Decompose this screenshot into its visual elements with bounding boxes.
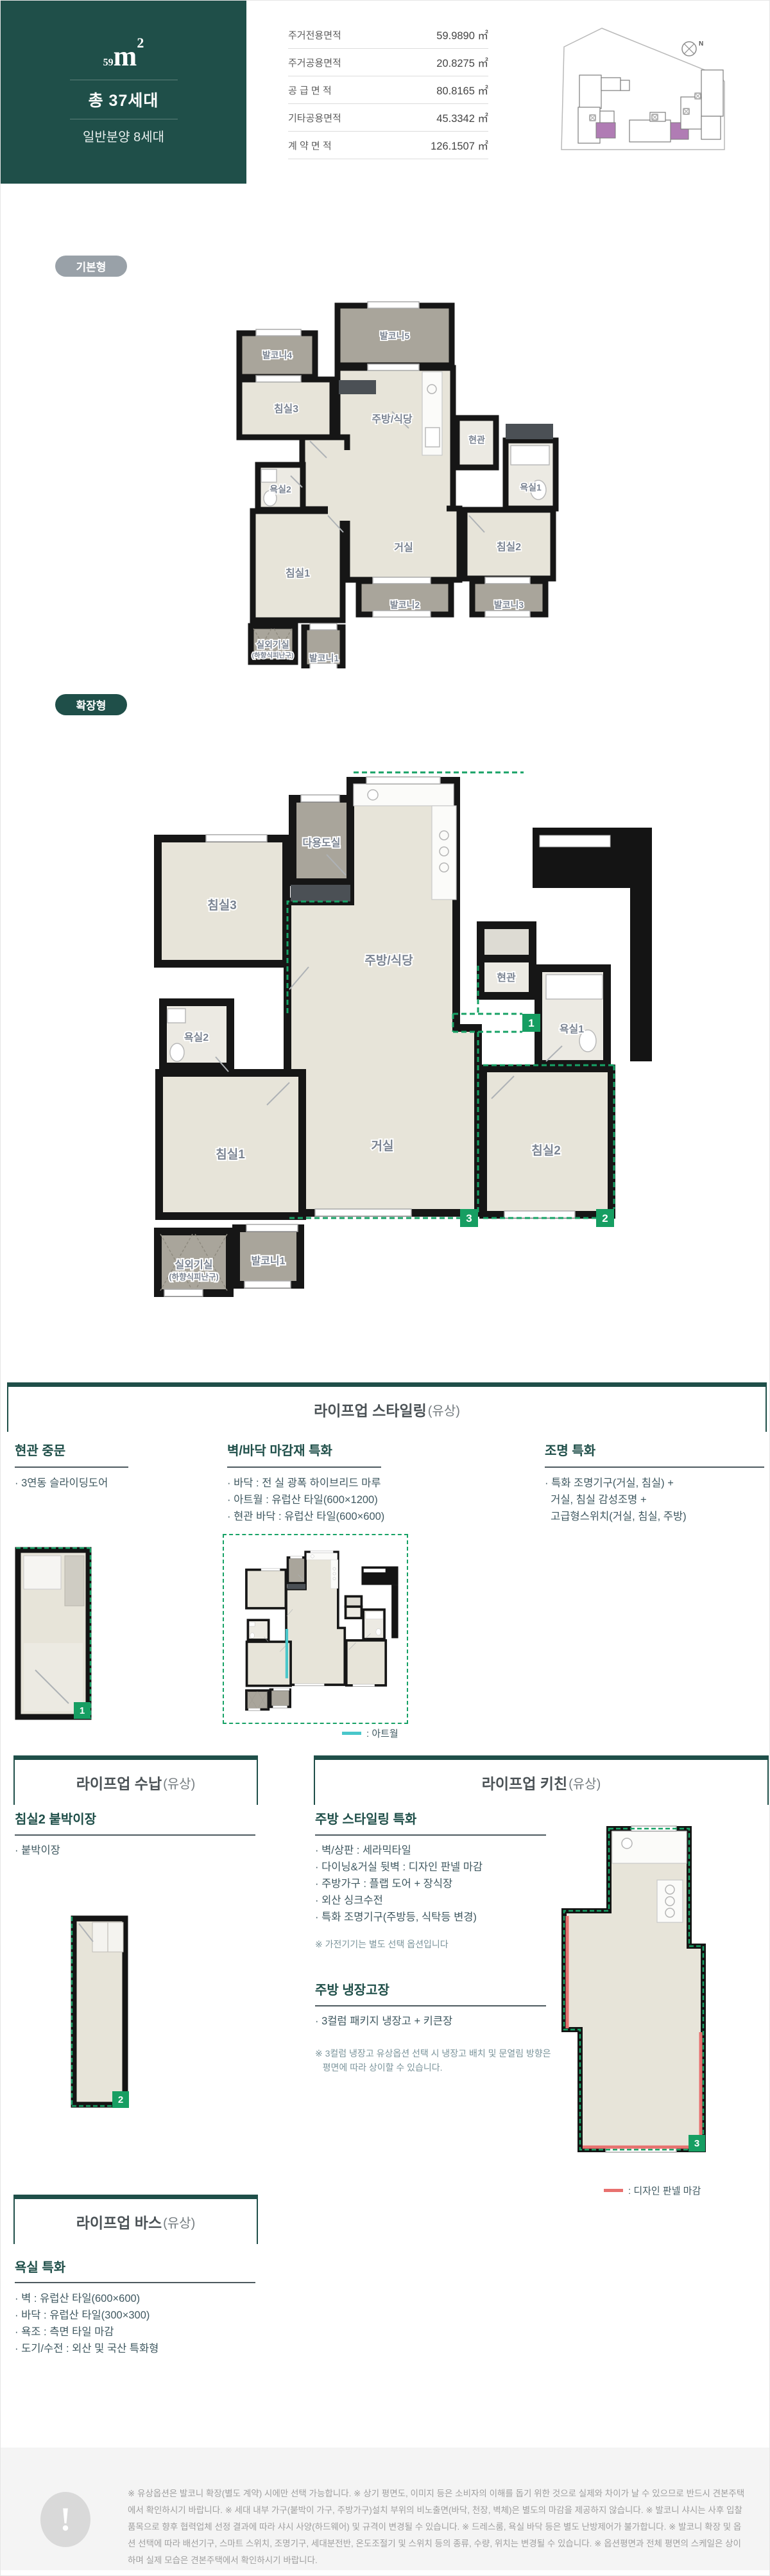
svg-text:N: N <box>699 40 703 48</box>
table-row: 주거공용면적20.8275 ㎡ <box>288 49 488 76</box>
room-label: 침실2 <box>497 541 521 553</box>
room-label: 발코니3 <box>494 600 524 610</box>
row-value: 20.8275 ㎡ <box>436 55 488 70</box>
table-row: 공 급 면 적80.8165 ㎡ <box>288 76 488 104</box>
artwall-legend: : 아트월 <box>342 1727 398 1740</box>
feature-heading: 주방 냉장고장 <box>315 1980 389 1998</box>
room-label: 현관 <box>468 435 485 445</box>
section-title: 라이프업 바스 <box>76 2211 162 2232</box>
general-sale-units: 일반분양 8세대 <box>83 126 164 145</box>
expansion-marker: 3 <box>466 1212 472 1224</box>
row-value: 59.9890 ㎡ <box>436 27 488 42</box>
area-size: 59m2 <box>103 36 144 71</box>
expansion-marker-badge: 2 <box>112 2091 129 2108</box>
badge-extended-type: 확장형 <box>55 694 127 715</box>
room-label: (하향식피난구) <box>169 1272 218 1282</box>
row-value: 126.1507 ㎡ <box>431 137 488 153</box>
room-label: 거실 <box>394 542 413 553</box>
room-label: 욕실1 <box>520 482 542 492</box>
artwall-plan-thumbnail <box>223 1534 408 1724</box>
room-label: 침실3 <box>274 403 298 415</box>
heading-underline <box>545 1466 764 1468</box>
panel-color-swatch <box>604 2189 623 2192</box>
table-row: 계 약 면 적126.1507 ㎡ <box>288 132 488 159</box>
room-label: 발코니4 <box>262 350 293 360</box>
entry-door-thumbnail <box>15 1547 92 1720</box>
north-compass-icon: N <box>682 40 703 56</box>
room-label: 발코니1 <box>309 653 339 663</box>
room-label: 욕실1 <box>560 1023 584 1035</box>
feature-bullets: · 3컬럼 패키지 냉장고 + 키큰장 <box>315 2013 546 2030</box>
expansion-marker: 1 <box>528 1017 534 1029</box>
room-label: 침실1 <box>216 1147 245 1162</box>
row-label: 주거공용면적 <box>288 56 341 69</box>
room-label: 발코니2 <box>390 600 420 610</box>
feature-bullets: · 벽/상판 : 세라믹타일 · 다이닝&거실 뒷벽 : 디자인 판넬 마감 ·… <box>315 1842 546 1926</box>
feature-note: ※ 3컬럼 냉장고 유상옵션 선택 시 냉장고 배치 및 문열림 방향은 평면에… <box>315 2046 552 2075</box>
section-header-styling: 라이프업 스타일링 (유상) <box>7 1382 767 1432</box>
wardrobe-room-thumbnail <box>71 1915 128 2108</box>
room-label: 거실 <box>372 1139 394 1153</box>
core-marker <box>652 114 658 120</box>
room-label: (하향식피난구) <box>252 651 294 659</box>
area-spec-table: 주거전용면적59.9890 ㎡ 주거공용면적20.8275 ㎡ 공 급 면 적8… <box>288 21 488 159</box>
row-label: 계 약 면 적 <box>288 139 332 152</box>
room-label: 침실2 <box>531 1144 561 1158</box>
section-title-paren: (유상) <box>569 1773 601 1792</box>
room-label: 발코니1 <box>251 1255 285 1267</box>
feature-heading: 침실2 붙박이장 <box>15 1809 96 1827</box>
heading-underline <box>15 1834 255 1836</box>
section-title: 라이프업 수납 <box>76 1771 162 1793</box>
row-label: 공 급 면 적 <box>288 83 332 97</box>
feature-heading: 벽/바닥 마감재 특화 <box>227 1440 332 1459</box>
section-title: 라이프업 키친 <box>482 1771 567 1793</box>
table-row: 주거전용면적59.9890 ㎡ <box>288 21 488 49</box>
unit-type-header: 59m2 총 37세대 일반분양 8세대 <box>1 1 246 184</box>
core-marker <box>683 109 689 114</box>
room-label: 욕실2 <box>269 484 291 494</box>
feature-bullets: · 벽 : 유럽산 타일(600×600) · 바닥 : 유럽산 타일(300×… <box>15 2290 246 2357</box>
heading-underline <box>227 1466 381 1468</box>
room-label: 현관 <box>497 971 516 984</box>
feature-heading: 조명 특화 <box>545 1440 595 1459</box>
core-marker <box>590 115 595 121</box>
room-label: 주방/식당 <box>372 413 413 425</box>
room-label: 욕실2 <box>184 1032 209 1043</box>
section-header-bath: 라이프업 바스 (유상) <box>13 2195 258 2244</box>
badge-basic-type: 기본형 <box>55 256 127 277</box>
row-value: 45.3342 ㎡ <box>436 110 488 125</box>
total-units: 총 37세대 <box>89 88 159 111</box>
room-label: 발코니5 <box>380 331 410 341</box>
floor-plan-basic: 발코니4 발코니5 침실3 주방/식당 현관 욕실1 욕실2 침실1 거실 침실… <box>200 283 559 668</box>
artwall-color-swatch <box>342 1732 361 1735</box>
section-title-paren: (유상) <box>163 1773 195 1792</box>
highlighted-unit <box>596 123 615 138</box>
room-label: 주방/식당 <box>364 953 413 968</box>
divider <box>70 119 178 119</box>
room-label: 침실1 <box>286 567 310 579</box>
feature-heading: 주방 스타일링 특화 <box>315 1809 416 1827</box>
feature-heading: 욕실 특화 <box>15 2257 65 2276</box>
table-row: 기타공용면적45.3342 ㎡ <box>288 104 488 132</box>
heading-underline <box>15 2282 255 2283</box>
room-label: 침실3 <box>207 898 237 912</box>
feature-bullets: · 3연동 슬라이딩도어 <box>15 1475 207 1492</box>
expansion-marker: 2 <box>602 1212 608 1224</box>
brochure-page: 59m2 총 37세대 일반분양 8세대 주거전용면적59.9890 ㎡ 주거공… <box>0 0 770 2576</box>
heading-underline <box>15 1466 128 1468</box>
feature-bullets: · 바닥 : 전 실 광폭 하이브리드 마루 · 아트월 : 유럽산 타일(60… <box>227 1475 439 1525</box>
footer-disclaimer-text: ※ 유상옵션은 발코니 확장(별도 계약) 시에만 선택 가능합니다. ※ 상기… <box>128 2485 745 2569</box>
expansion-marker-badge: 1 <box>74 1702 90 1719</box>
kitchen-plan-thumbnail <box>561 1825 707 2153</box>
alert-icon: ! <box>40 2492 90 2547</box>
section-title-paren: (유상) <box>428 1400 460 1419</box>
expansion-marker-badge: 3 <box>689 2135 705 2152</box>
section-header-kitchen: 라이프업 키친 (유상) <box>314 1755 769 1805</box>
feature-heading: 현관 중문 <box>15 1440 65 1459</box>
row-label: 주거전용면적 <box>288 28 341 42</box>
room-label: 다용도실 <box>303 837 341 849</box>
feature-bullets: · 특화 조명기구(거실, 침실) + 거실, 침실 감성조명 + 고급형스위치… <box>545 1475 764 1525</box>
design-panel-legend: : 디자인 판넬 마감 <box>604 2184 701 2197</box>
heading-underline <box>315 2005 546 2006</box>
section-title-paren: (유상) <box>163 2213 195 2231</box>
section-header-storage: 라이프업 수납 (유상) <box>13 1755 258 1805</box>
row-value: 80.8165 ㎡ <box>436 82 488 98</box>
heading-underline <box>315 1834 546 1836</box>
feature-bullets: · 붙박이장 <box>15 1842 207 1859</box>
divider <box>70 80 178 80</box>
room-label: 실외기실 <box>175 1259 213 1271</box>
row-label: 기타공용면적 <box>288 111 341 125</box>
floor-plan-extended: 1 2 3 침실3 다용도실 주방/식당 현관 욕실1 욕실2 침실1 거실 침… <box>97 733 668 1330</box>
feature-note: ※ 가전기기는 별도 선택 옵션입니다 <box>315 1937 546 1951</box>
room-label: 실외기실 <box>256 640 289 650</box>
section-title: 라이프업 스타일링 <box>314 1398 427 1420</box>
site-plan-map: N <box>552 13 732 158</box>
core-marker <box>695 93 701 99</box>
